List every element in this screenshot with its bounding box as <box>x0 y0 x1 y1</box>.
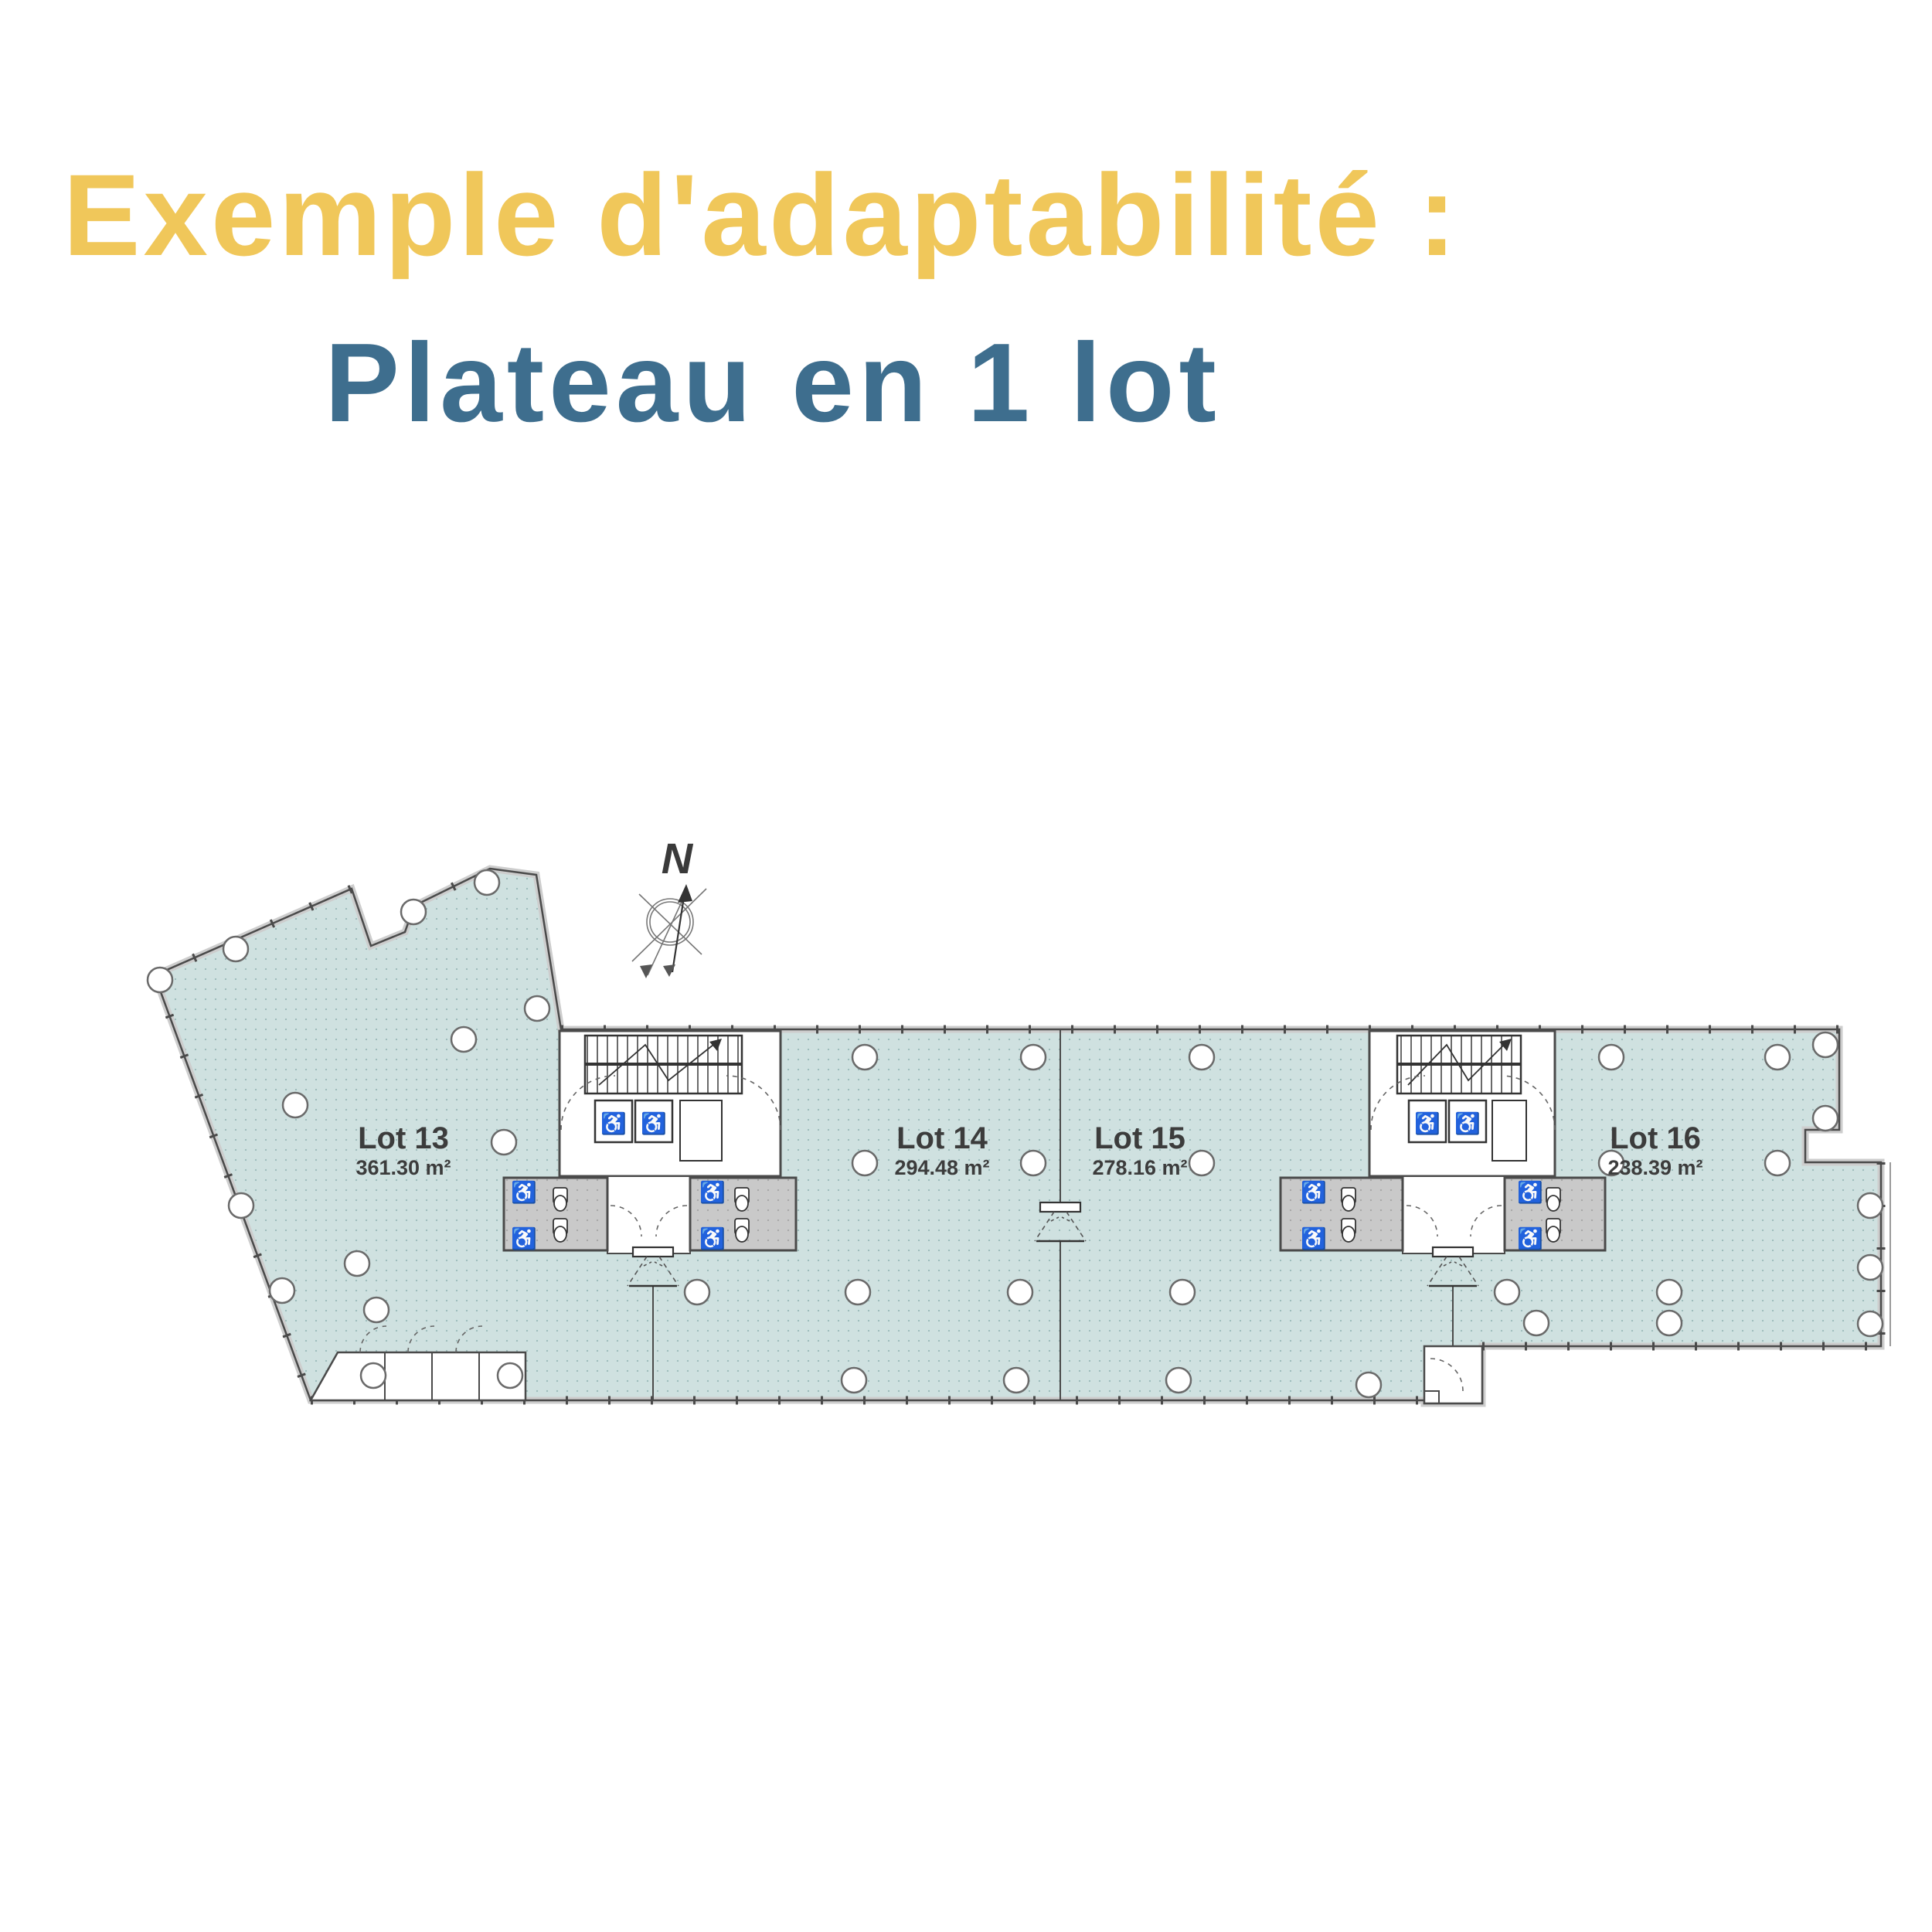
wheelchair-icon: ♿ <box>699 1226 726 1250</box>
lot-name: Lot 16 <box>1610 1121 1701 1155</box>
lot-label-15: Lot 15 278.16 m² <box>1092 1121 1187 1179</box>
wheelchair-icon: ♿ <box>1414 1111 1440 1135</box>
wheelchair-icon: ♿ <box>511 1226 537 1250</box>
wheelchair-icon: ♿ <box>600 1111 627 1135</box>
wheelchair-icon: ♿ <box>1301 1226 1327 1250</box>
lot-area: 294.48 m² <box>894 1156 989 1179</box>
wheelchair-icon: ♿ <box>699 1180 726 1204</box>
lot-area: 278.16 m² <box>1092 1156 1187 1179</box>
lot-area: 238.39 m² <box>1607 1156 1702 1179</box>
lot-name: Lot 14 <box>896 1121 988 1155</box>
lot-name: Lot 15 <box>1094 1121 1185 1155</box>
lot-label-14: Lot 14 294.48 m² <box>894 1121 989 1179</box>
page-title: Exemple d'adaptabilité : <box>63 150 1459 280</box>
lot-label-13: Lot 13 361.30 m² <box>355 1121 451 1179</box>
wheelchair-icon: ♿ <box>1454 1111 1481 1135</box>
service-room-bottom-right <box>1424 1346 1482 1403</box>
wheelchair-icon: ♿ <box>1301 1180 1327 1204</box>
compass-rose: N <box>632 834 706 978</box>
wheelchair-icon: ♿ <box>1517 1180 1543 1204</box>
wheelchair-icon: ♿ <box>1517 1226 1543 1250</box>
wheelchair-icon: ♿ <box>511 1180 537 1204</box>
compass-north-label: N <box>662 834 694 883</box>
floor-plan: ♿ ♿ ♿ ♿ ♿ ♿ <box>148 869 1890 1403</box>
slide-canvas: Exemple d'adaptabilité : Plateau en 1 lo… <box>0 0 1932 1932</box>
wheelchair-icon: ♿ <box>641 1111 667 1135</box>
lot-area: 361.30 m² <box>355 1156 451 1179</box>
lot-name: Lot 13 <box>358 1121 449 1155</box>
lot-label-16: Lot 16 238.39 m² <box>1607 1121 1702 1179</box>
page-subtitle: Plateau en 1 lot <box>325 320 1221 445</box>
